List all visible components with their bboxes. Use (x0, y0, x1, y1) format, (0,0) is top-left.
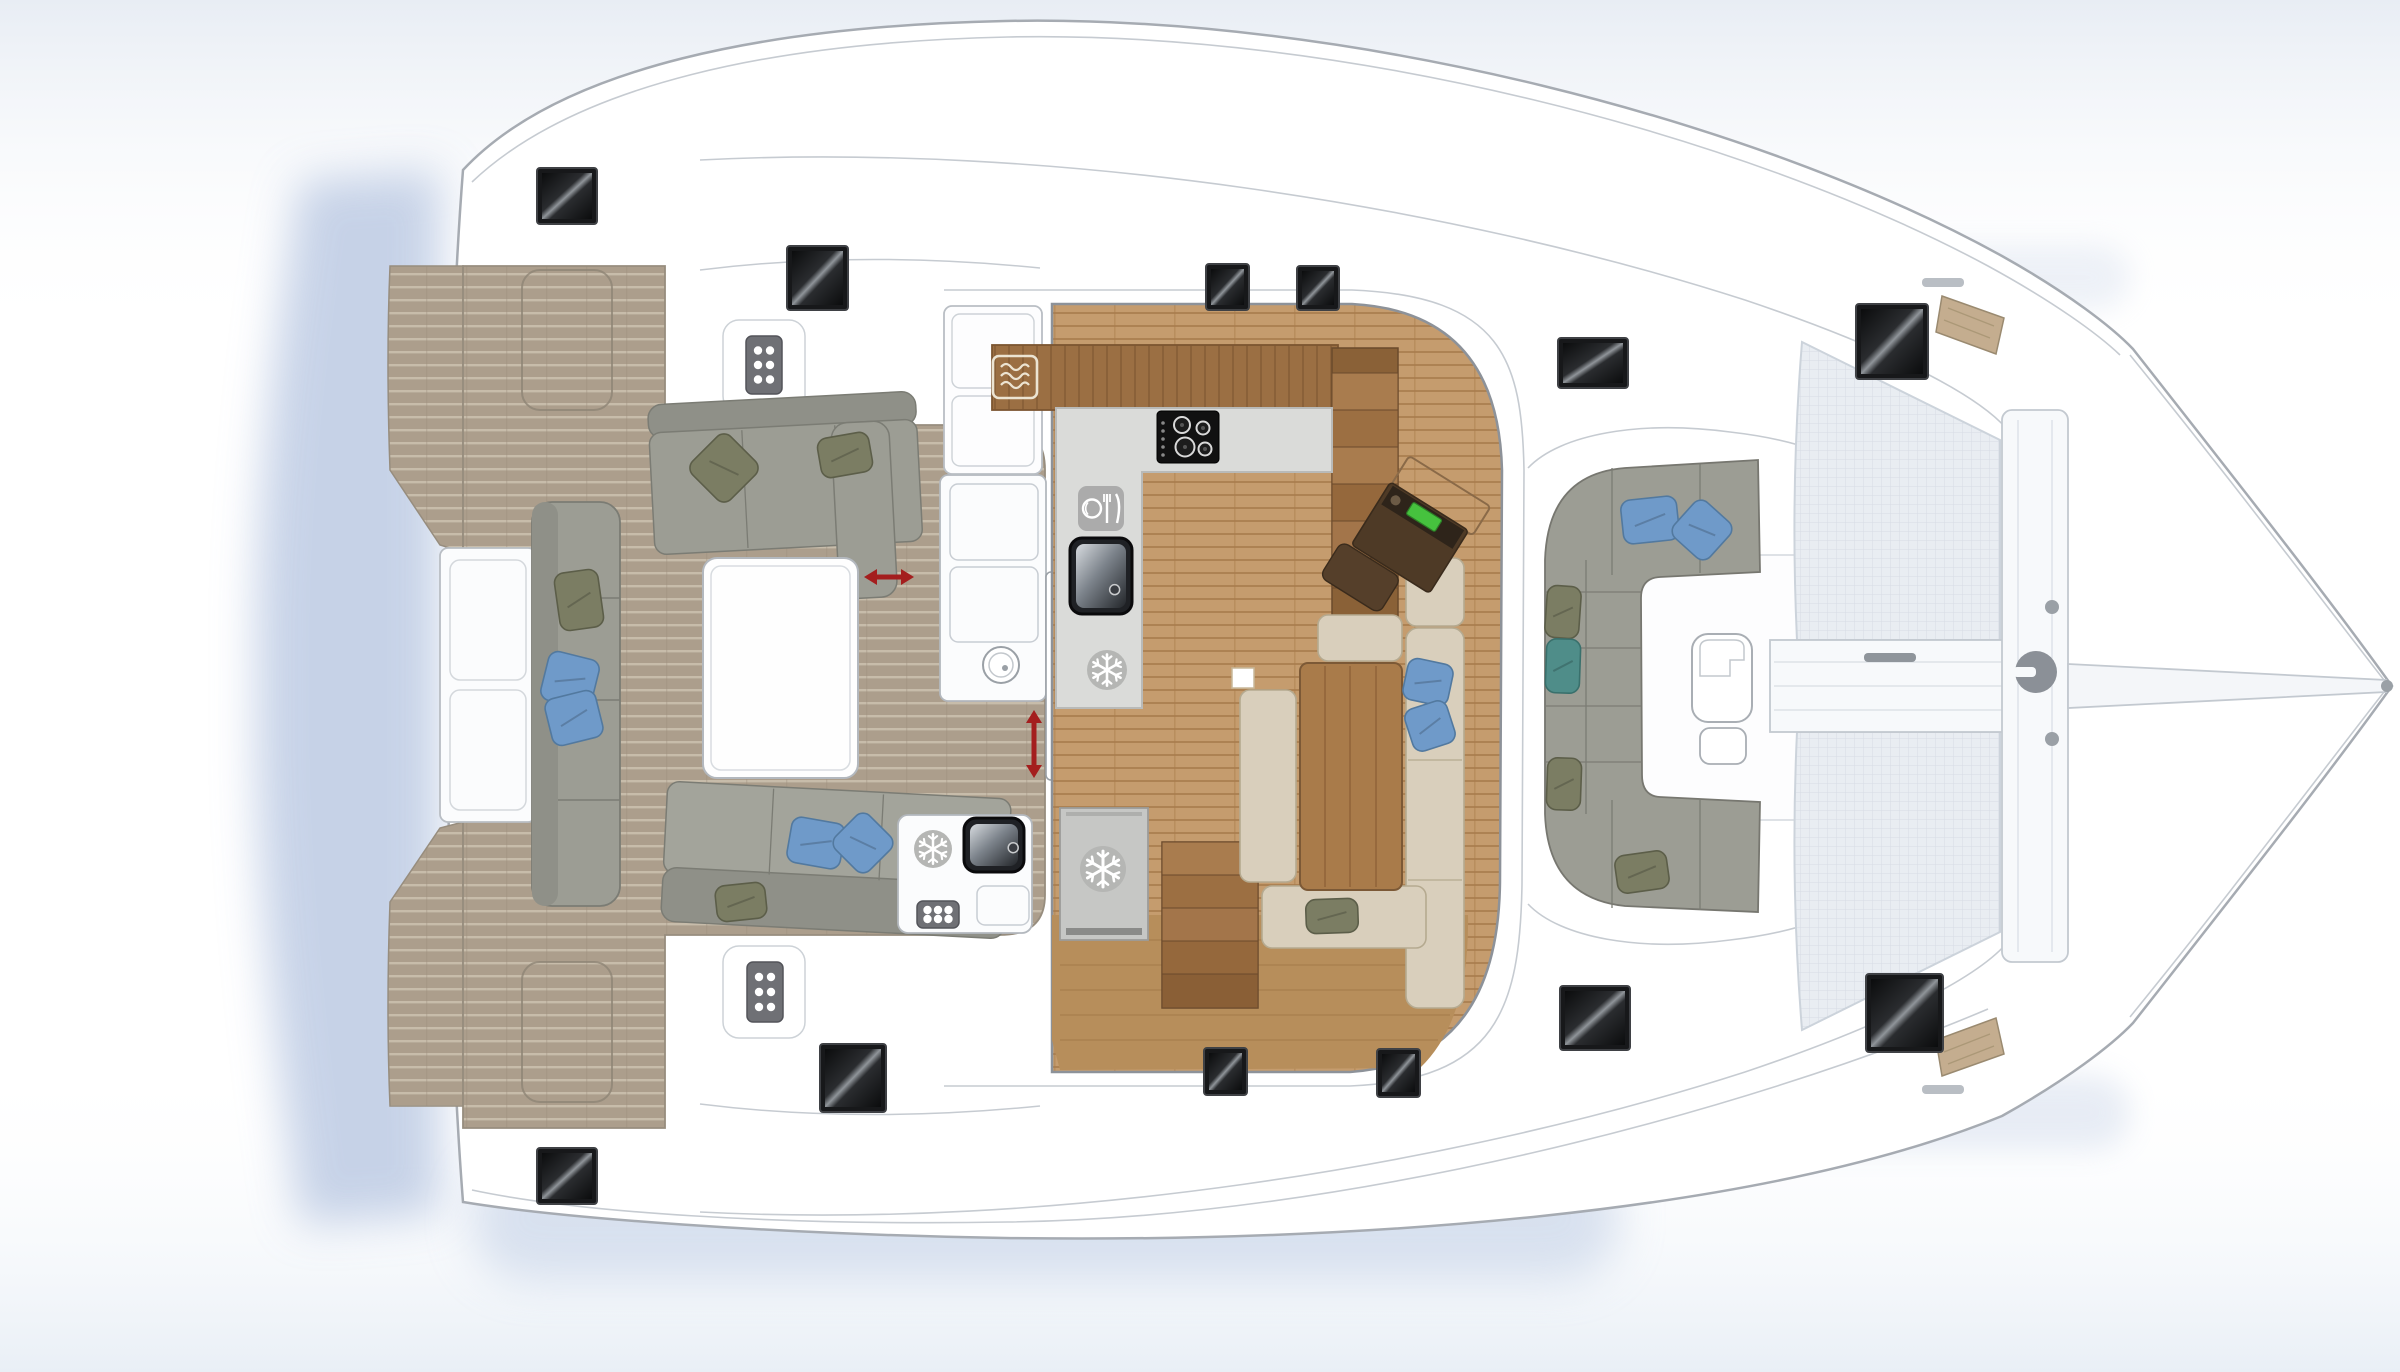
pillow-blue (1620, 495, 1680, 545)
pillow-olive (714, 881, 767, 922)
pillow-blue (1401, 657, 1455, 708)
galley-cabinet (992, 345, 1338, 410)
snowflake-icon (914, 830, 952, 868)
dining-bench-left (1240, 690, 1296, 882)
snowflake-icon (1087, 650, 1127, 690)
deck-hatch (1377, 1049, 1420, 1097)
catamaran-deck-plan (0, 0, 2400, 1372)
sink-icon (964, 818, 1024, 872)
pillow-olive (816, 431, 874, 479)
vent-grid (747, 962, 783, 1022)
dining-table (1300, 663, 1402, 890)
deck-hatch (1204, 1048, 1247, 1095)
pillow-olive (1305, 898, 1358, 934)
pillow-olive (1546, 757, 1582, 810)
sink-icon (1070, 538, 1132, 614)
dishwasher-icon (1078, 486, 1124, 531)
anchor-chain-guide (1864, 653, 1916, 662)
deck-hatch (537, 168, 597, 224)
forward-cockpit-table (1692, 634, 1752, 764)
deck-hatch (1297, 266, 1339, 310)
anchor-plank (1770, 640, 2004, 732)
snowflake-icon (1080, 846, 1126, 892)
deck-hatch (787, 246, 848, 310)
deck-plan-stage (0, 0, 2400, 1372)
pillow-olive (1544, 585, 1582, 639)
sink-round-icon (983, 647, 1019, 683)
pillow-teal (1545, 638, 1581, 693)
deck-hatch (820, 1044, 886, 1112)
salon-floor-hatch (1232, 668, 1254, 688)
pillow-olive (1614, 850, 1671, 895)
deck-hatch (537, 1148, 597, 1204)
vent-grid (917, 901, 959, 928)
dining-bench-head (1318, 615, 1402, 661)
deck-hatch (1856, 304, 1928, 379)
pillow-olive (553, 568, 605, 632)
cooktop-icon (1157, 411, 1219, 463)
deck-hatch (1206, 264, 1249, 310)
deck-hatch (1866, 974, 1943, 1052)
vent-grid (746, 336, 782, 394)
transom-boarding-platform (440, 548, 536, 822)
deck-hatch (1560, 986, 1630, 1050)
cockpit-table (703, 558, 858, 778)
deck-hatch (1558, 338, 1628, 388)
